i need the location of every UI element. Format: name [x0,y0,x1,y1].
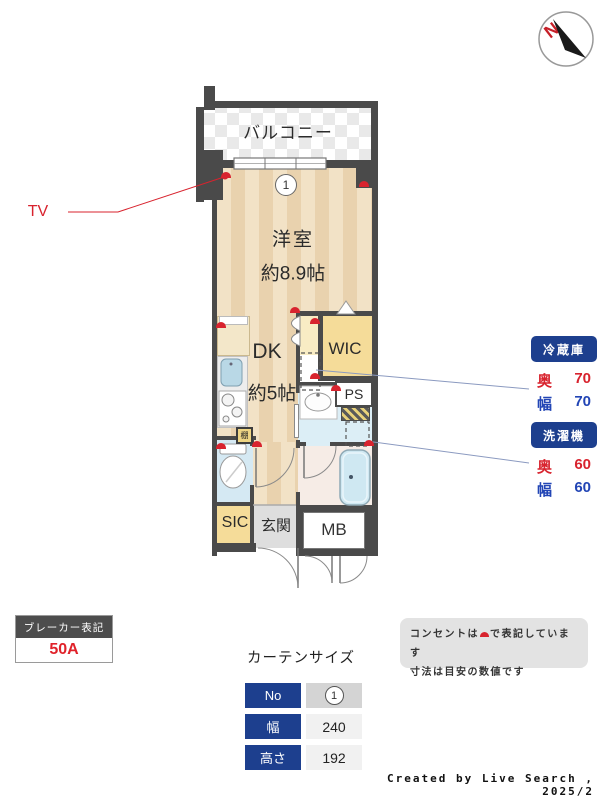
window-number-badge: 1 [275,174,297,196]
outlet-marker [252,441,262,447]
breaker-value: 50A [16,638,112,662]
north-compass-icon: N [534,6,598,72]
fridge-depth-label: 奥 [537,370,552,391]
outlet-marker [290,307,300,313]
shelf-label: 棚 [241,430,249,441]
main-room-name: 洋室 [272,225,314,252]
outlet-marker [310,318,320,324]
dk-name: DK [252,340,281,364]
fridge-width-value: 70 [574,393,591,414]
outlet-marker [364,440,374,446]
curtain-no-circled: 1 [325,686,344,705]
curtain-row-no-label: No [245,683,301,708]
wic-vent-triangle [337,301,355,314]
outlet-marker [310,373,320,379]
window-number: 1 [283,178,290,192]
fridge-width-label: 幅 [537,393,552,414]
sic-label: SIC [222,514,249,532]
outlet-marker [216,443,226,449]
balcony-label: バルコニー [243,119,333,144]
main-room-size: 約8.9帖 [261,259,325,286]
wic-label: WIC [328,339,361,359]
legend-note-box: コンセントはで表記しています 寸法は目安の数値です [400,618,588,668]
breaker-box: ブレーカー表記 50A [15,615,113,663]
outlet-symbol-icon [480,632,489,637]
curtain-row-height-value: 192 [306,745,362,770]
washroom-pocket-door [294,404,299,438]
washer-title: 洗濯機 [543,427,585,444]
washer-width-label: 幅 [537,479,552,500]
entrance-label: 玄関 [261,515,291,536]
shelf-box: 棚 [236,427,253,444]
ps-hatch-box [341,407,370,421]
fridge-badge: 冷蔵庫 [531,336,597,362]
fridge-width-row: 幅 70 [531,393,597,414]
washer-depth-row: 奥 60 [531,456,597,477]
outlet-marker [359,181,369,187]
washer-depth-label: 奥 [537,456,552,477]
washer-leader-line [366,441,529,463]
dk-size: 約5帖 [248,379,297,406]
curtain-title: カーテンサイズ [247,647,355,668]
fridge-depth-row: 奥 70 [531,370,597,391]
floor-plan-page: 棚 1 バルコニー 洋室 約8.9帖 DK 約5帖 WIC PS SIC 玄関 … [0,0,600,800]
note-line2: 寸法は目安の数値です [410,667,525,678]
outlet-marker [221,172,231,178]
fridge-depth-value: 70 [574,370,591,391]
credit-text: Created by Live Search , 2025/2 [330,772,594,798]
breaker-title: ブレーカー表記 [16,616,112,638]
outlet-marker [331,385,341,391]
tv-label: TV [28,203,48,221]
washer-width-value: 60 [574,479,591,500]
washer-badge: 洗濯機 [531,422,597,448]
curtain-row-width-value: 240 [306,714,362,739]
kitchen-sink-icon [221,359,242,386]
ps-label: PS [345,386,364,402]
mb-label: MB [321,520,347,540]
fridge-title: 冷蔵庫 [543,341,585,358]
washer-width-row: 幅 60 [531,479,597,500]
curtain-row-height-label: 高さ [245,745,301,770]
note-line1-pre: コンセントは [410,629,479,640]
stove-icon [219,391,246,426]
curtain-row-no-value: 1 [306,683,362,708]
bathtub-icon [340,450,370,505]
curtain-row-width-label: 幅 [245,714,301,739]
window [234,158,326,169]
outlet-marker [216,322,226,328]
toilet-icon [220,444,246,488]
washer-depth-value: 60 [574,456,591,477]
